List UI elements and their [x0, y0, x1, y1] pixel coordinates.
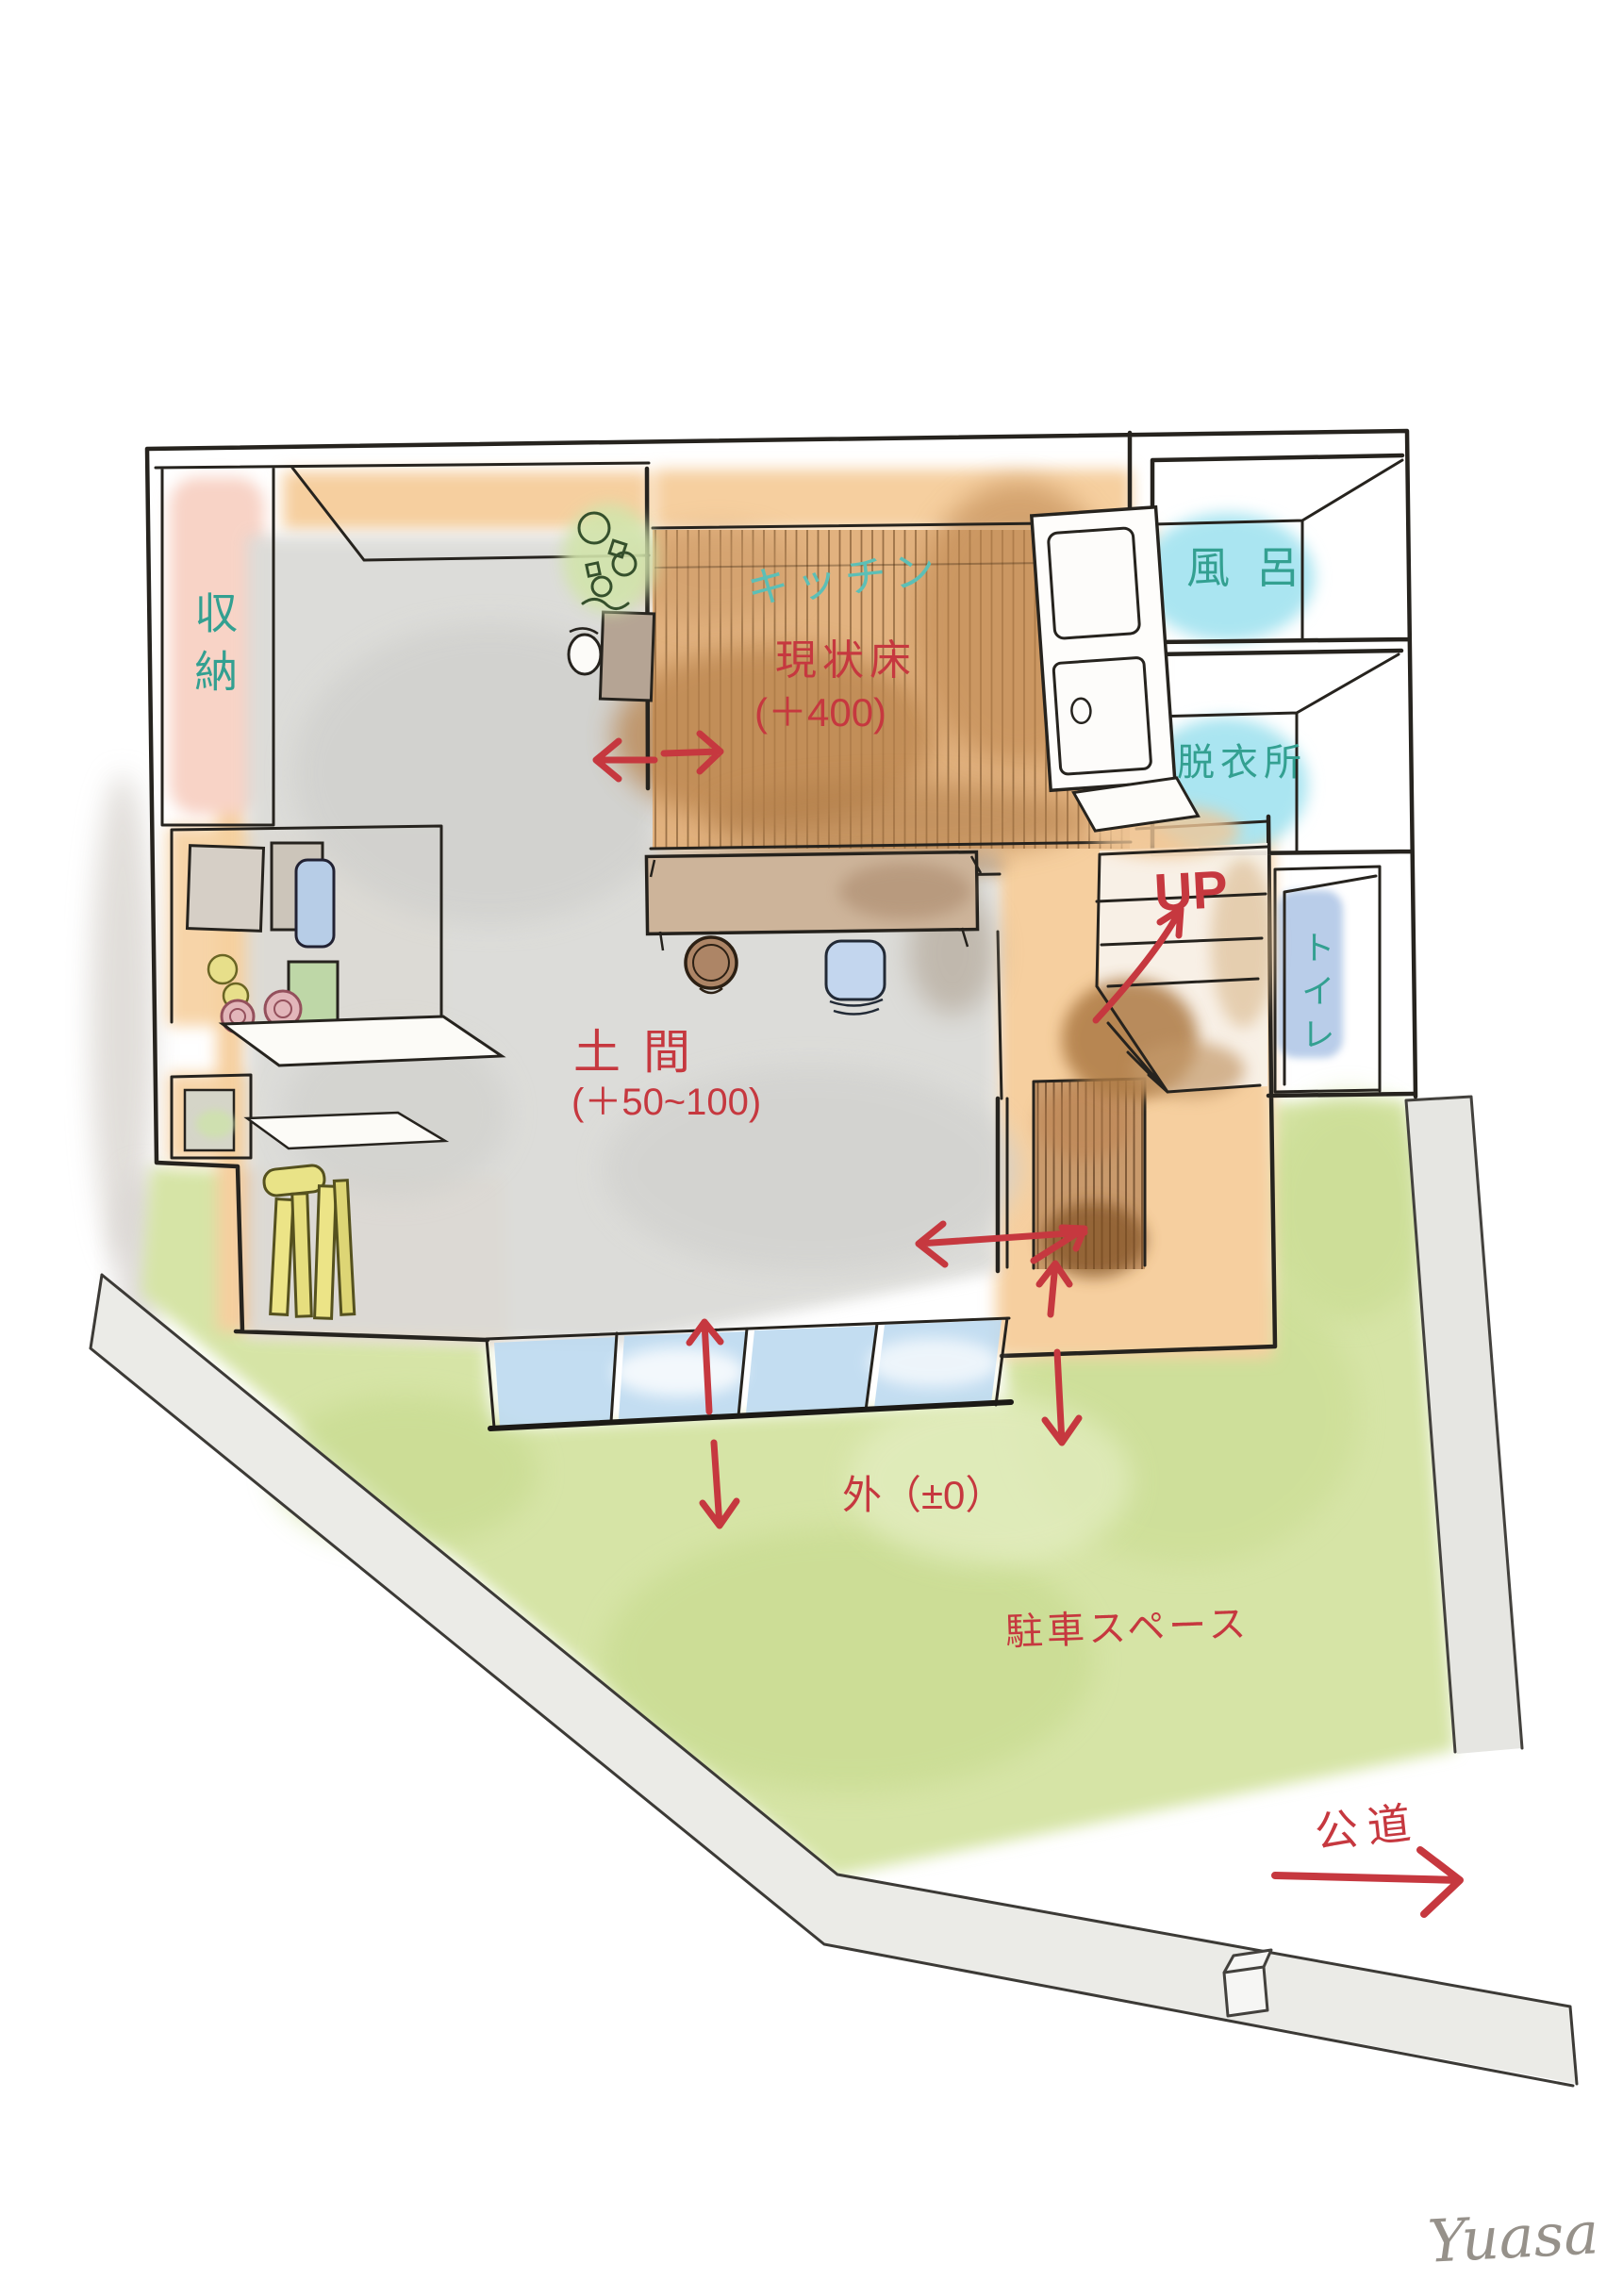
toilet-room-label: トイレ	[1298, 930, 1333, 1060]
doma-height-label: (＋50~100)	[571, 1082, 761, 1122]
parking-space-label: 駐車スペース	[1004, 1604, 1250, 1652]
storage-room-label: 収納	[190, 590, 236, 707]
floor-plan-canvas: 収納 キッチン 現状床 (＋400) 風呂 脱衣所 トイレ UP 土間 (＋50…	[0, 0, 1623, 2296]
plant-sketch	[562, 504, 656, 613]
stairs-up-label: UP	[1153, 862, 1230, 921]
bath-room-label: 風呂	[1186, 545, 1326, 590]
doma-label: 土間	[573, 1028, 713, 1078]
gate-post-sketch	[1224, 1950, 1271, 2016]
arrow-public-road	[1275, 1850, 1460, 1914]
current-floor-height-label: (＋400)	[754, 692, 886, 734]
public-road-label: 公道	[1313, 1799, 1422, 1856]
dressing-room-label: 脱衣所	[1177, 743, 1307, 783]
outside-level-label: 外（±0）	[842, 1475, 1004, 1516]
floor-plan-sketch	[0, 0, 1623, 2296]
current-floor-label: 現状床	[775, 639, 917, 683]
artist-signature: Yuasa	[1426, 2202, 1599, 2271]
yellow-boards	[263, 1165, 355, 1319]
